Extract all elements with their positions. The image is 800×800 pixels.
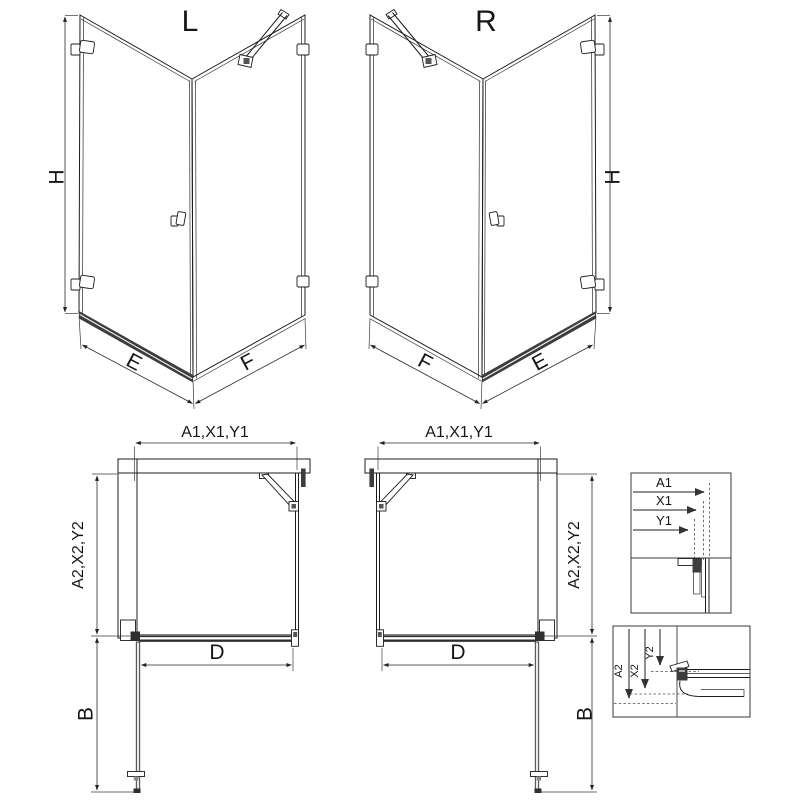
dim-label-top: A1,X1,Y1 bbox=[425, 424, 493, 441]
variant-label: L bbox=[182, 5, 199, 38]
dim-label-door: D bbox=[209, 641, 224, 664]
diagram-canvas: L H E F R H F E A1,X1,Y1 A2,X2,Y2 D B bbox=[0, 0, 800, 800]
detail-dim-x1: X1 bbox=[656, 493, 672, 508]
dim-label-side: A2,X2,Y2 bbox=[70, 521, 87, 589]
variant-label: R bbox=[475, 5, 497, 38]
dim-label-side: A2,X2,Y2 bbox=[566, 521, 583, 589]
dim-label-door: D bbox=[450, 641, 465, 664]
detail-dim-a2: A2 bbox=[613, 664, 625, 677]
detail-box-bottom: A2 X2 Y2 bbox=[613, 626, 750, 717]
detail-box-top: A1 X1 Y1 bbox=[631, 473, 731, 613]
shower-enclosure-diagram: L H E F R H F E A1,X1,Y1 A2,X2,Y2 D B bbox=[0, 0, 800, 800]
detail-dim-y2: Y2 bbox=[644, 646, 656, 659]
dim-label-swing: B bbox=[74, 707, 97, 721]
dim-label-top: A1,X1,Y1 bbox=[181, 424, 249, 441]
dim-label-h: H bbox=[601, 169, 624, 184]
detail-dim-x2: X2 bbox=[629, 664, 641, 677]
detail-dim-a1: A1 bbox=[656, 475, 672, 490]
detail-dim-y1: Y1 bbox=[656, 513, 672, 528]
dim-label-h: H bbox=[45, 169, 68, 184]
dim-label-swing: B bbox=[573, 707, 596, 721]
